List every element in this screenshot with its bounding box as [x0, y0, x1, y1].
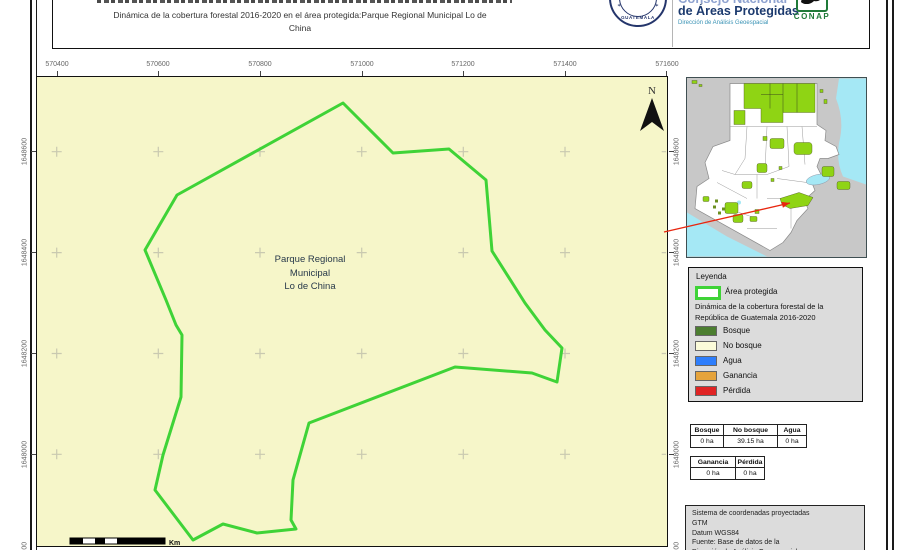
crs-info-box: Sistema de coordenadas proyectadas GTM D… [685, 505, 865, 550]
y-axis-label: 1648400 [22, 235, 31, 271]
legend-label-perdida: Pérdida [723, 386, 751, 395]
axis-tick [669, 252, 674, 253]
legend-subtitle-line1: Dinámica de la cobertura forestal de la [695, 301, 823, 312]
north-arrow-icon [640, 98, 664, 131]
scale-bar [70, 538, 165, 544]
legend-swatch-no-bosque [695, 341, 717, 351]
y-axis-label: 1648200 [674, 336, 683, 372]
main-map-canvas: N Km [37, 77, 666, 545]
axis-tick [57, 71, 58, 76]
axis-tick [31, 353, 36, 354]
legend: Leyenda Área protegida Dinámica de la co… [688, 267, 863, 402]
y-axis-label: 1648200 [22, 336, 31, 372]
crs-line: GTM [692, 519, 858, 529]
axis-tick [669, 353, 674, 354]
org-name: de Áreas Protegidas [678, 4, 799, 18]
seal-star-icon: ✶ [617, 3, 621, 9]
legend-label-no-bosque: No bosque [723, 341, 762, 350]
conap-label: CONAP [792, 12, 832, 21]
legend-label-bosque: Bosque [723, 326, 750, 335]
y-axis-label: 1648000 [674, 437, 683, 473]
stats-header: Agua [778, 425, 807, 436]
x-axis-label: 571400 [540, 61, 590, 68]
axis-tick [31, 151, 36, 152]
place-label-line2: Municipal [220, 267, 400, 281]
stats-header: Ganancia [691, 457, 736, 468]
axis-tick [463, 71, 464, 76]
axis-tick [669, 454, 674, 455]
legend-title: Leyenda [696, 272, 727, 281]
y-axis-label-partial: 1647800 [674, 538, 683, 550]
crs-line: Sistema de coordenadas proyectadas [692, 509, 858, 519]
x-axis-label: 570400 [32, 61, 82, 68]
grid-crosses [52, 147, 666, 460]
seal-star-icon: ✶ [655, 3, 659, 9]
axis-tick [669, 151, 674, 152]
map-title-line2: China [62, 22, 538, 35]
quetzal-bird-icon [798, 0, 825, 4]
map-document-page: Dinámica de la cobertura forestal 2016-2… [0, 0, 900, 550]
seal-text: GUATEMALA [611, 15, 665, 20]
legend-label-agua: Agua [723, 356, 742, 365]
page-frame-right-outer [892, 0, 894, 550]
x-axis-label: 571200 [438, 61, 488, 68]
x-axis-label: 571600 [642, 61, 692, 68]
org-subtitle: Dirección de Análisis Geoespacial [678, 20, 768, 26]
stats-value: 0 ha [691, 436, 724, 448]
stats-value: 39.15 ha [724, 436, 778, 448]
stats-value: 0 ha [691, 468, 736, 480]
axis-tick [565, 71, 566, 76]
legend-swatch-agua [695, 356, 717, 366]
stats-header: No bosque [724, 425, 778, 436]
clipped-title-line [97, 0, 512, 3]
stats-value: 0 ha [736, 468, 765, 480]
x-axis-label: 570600 [133, 61, 183, 68]
axis-tick [31, 252, 36, 253]
north-label: N [648, 85, 656, 97]
place-label: Parque Regional Municipal Lo de China [220, 253, 400, 294]
stats-header: Bosque [691, 425, 724, 436]
page-frame-right-inner [886, 0, 888, 550]
map-title-line1: Dinámica de la cobertura forestal 2016-2… [62, 9, 538, 22]
axis-tick [362, 71, 363, 76]
conap-logo [796, 0, 828, 12]
y-axis-label: 1648600 [674, 134, 683, 170]
area-protegida-label: Área protegida [725, 287, 777, 296]
place-label-line1: Parque Regional [220, 253, 400, 267]
legend-subtitle-line2: República de Guatemala 2016-2020 [695, 312, 816, 323]
header-divider [672, 0, 673, 47]
y-axis-label-partial: 1647800 [22, 538, 31, 550]
crs-line: Datum WGS84 [692, 529, 858, 539]
x-axis-label: 571000 [337, 61, 387, 68]
y-axis-label: 1648600 [22, 134, 31, 170]
legend-swatch-perdida [695, 386, 717, 396]
change-stats-table: Ganancia Pérdida 0 ha 0 ha [690, 456, 765, 480]
area-protegida-swatch [695, 286, 721, 300]
x-axis-label: 570800 [235, 61, 285, 68]
main-map: N Km Parque Regional Municipal Lo de Chi… [36, 76, 668, 547]
locator-arrow-icon [650, 192, 800, 240]
legend-swatch-bosque [695, 326, 717, 336]
legend-label-ganancia: Ganancia [723, 371, 757, 380]
stats-value: 0 ha [778, 436, 807, 448]
coverage-stats-table: Bosque No bosque Agua 0 ha 39.15 ha 0 ha [690, 424, 807, 448]
map-title: Dinámica de la cobertura forestal 2016-2… [62, 9, 538, 35]
place-label-line3: Lo de China [220, 280, 400, 294]
crs-line: Fuente: Base de datos de la [692, 538, 858, 548]
y-axis-label: 1648000 [22, 437, 31, 473]
axis-tick [31, 454, 36, 455]
axis-tick [260, 71, 261, 76]
scale-unit-label: Km [169, 540, 180, 545]
legend-swatch-ganancia [695, 371, 717, 381]
axis-tick [666, 71, 667, 76]
protected-area-outline [145, 103, 562, 540]
axis-tick [158, 71, 159, 76]
stats-header: Pérdida [736, 457, 765, 468]
